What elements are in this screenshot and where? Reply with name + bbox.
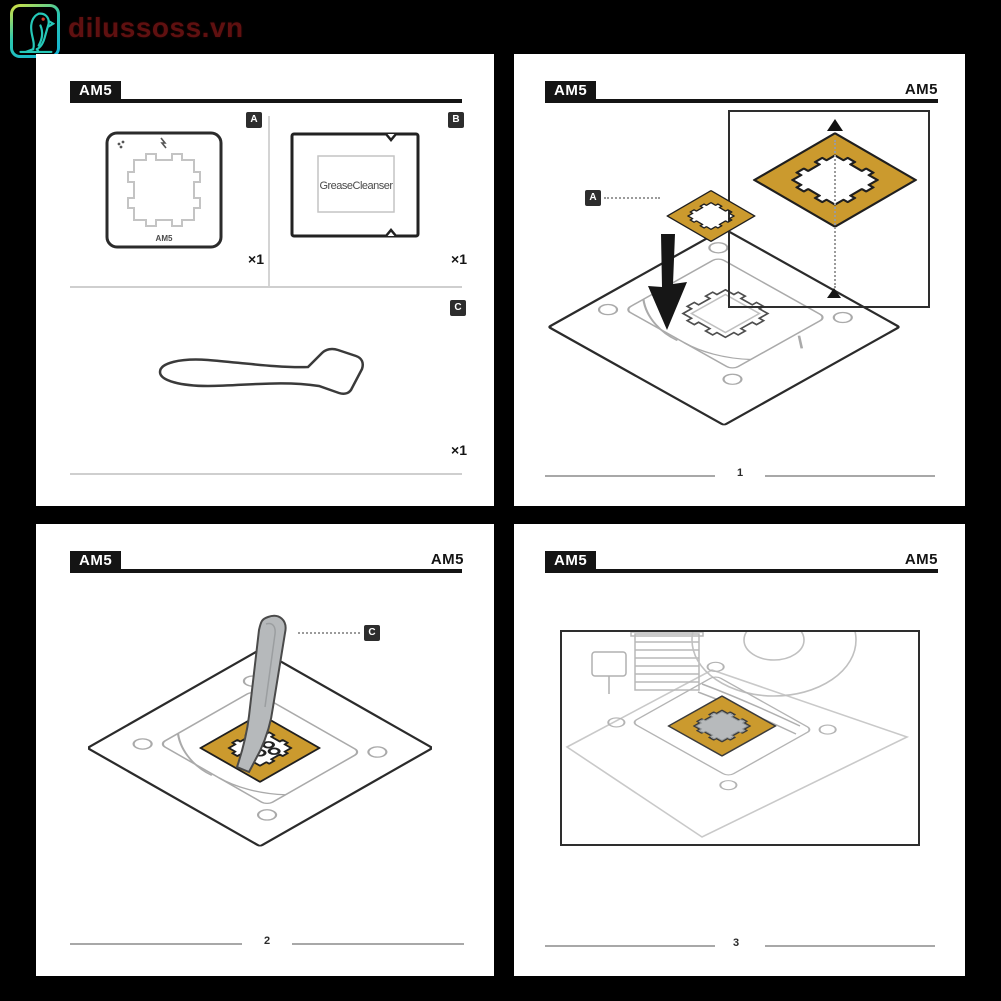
watermark-logo-frame (10, 4, 60, 58)
watermark-logo (13, 7, 57, 55)
section-divider-bottom (70, 473, 462, 475)
footer-line-right (292, 943, 464, 945)
footer-line-left (545, 475, 715, 477)
header-right-label: AM5 (905, 551, 938, 568)
step-number: 3 (725, 937, 747, 949)
step-number: 1 (729, 467, 751, 479)
header-right-label: AM5 (905, 81, 938, 98)
footer-line-right (765, 475, 935, 477)
cell-divider (268, 116, 270, 288)
callout-c: C (450, 300, 466, 316)
callout-b: B (448, 112, 464, 128)
alignment-guide (834, 140, 836, 288)
footer-line-left (545, 945, 715, 947)
callout-a: A (585, 190, 601, 206)
callout-a: A (246, 112, 262, 128)
spreader-illustration (152, 342, 374, 400)
fan (692, 632, 856, 696)
section-divider (70, 286, 462, 288)
grease-cleanser-illustration: GreaseCleanser (288, 130, 424, 242)
result-frame-box (560, 630, 920, 846)
qty-cleanser: ×1 (421, 251, 467, 267)
orientation-arrow (827, 119, 843, 131)
socket-with-paste (605, 660, 839, 791)
header-rule (545, 99, 938, 103)
am5-badge: AM5 (70, 551, 121, 571)
spreader-in-use (216, 612, 298, 777)
socket-marker (827, 288, 841, 298)
callout-leader (298, 632, 360, 634)
frame-engraving: AM5 (156, 234, 173, 243)
am5-badge: AM5 (70, 81, 121, 101)
sachet-label: GreaseCleanser (319, 180, 393, 192)
header-rule (70, 569, 462, 573)
header-right-label: AM5 (431, 551, 464, 568)
panel-step-3: AM5 AM5 (514, 524, 965, 976)
panel-step-2: AM5 AM5 C (36, 524, 494, 976)
header-rule (545, 569, 938, 573)
callout-c: C (364, 625, 380, 641)
footer-line-left (70, 943, 242, 945)
am5-badge: AM5 (545, 551, 596, 571)
watermark-text: dilussoss.vn (68, 12, 244, 44)
mounting-frame-illustration: AM5 (102, 128, 226, 252)
panel-step-1: AM5 AM5 (514, 54, 965, 506)
qty-frame: ×1 (218, 251, 264, 267)
down-arrow (644, 234, 694, 334)
header-rule (70, 99, 462, 103)
panel-parts-list: AM5 A B AM5 ×1 GreaseCleanser ×1 C (36, 54, 494, 506)
parrot-eye (42, 18, 45, 21)
am5-badge: AM5 (545, 81, 596, 101)
step-number: 2 (256, 935, 278, 947)
callout-leader (604, 197, 660, 199)
qty-spreader: ×1 (421, 442, 467, 458)
parrot-icon (15, 9, 55, 53)
footer-line-right (765, 945, 935, 947)
manual-page: dilussoss.vn AM5 A B AM5 ×1 GreaseCleans… (0, 0, 1001, 1001)
cooler-installed-illustration (562, 632, 913, 839)
